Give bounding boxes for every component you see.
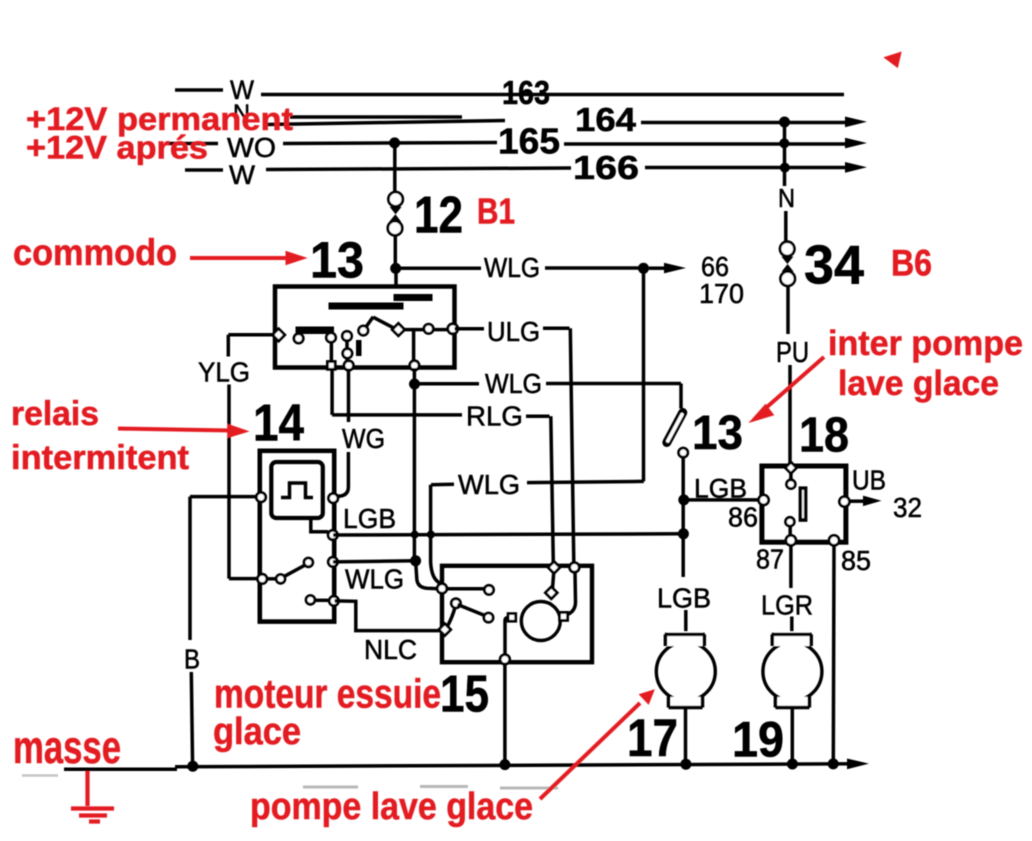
svg-text:85: 85 [841,545,871,576]
svg-text:B6: B6 [891,243,932,284]
svg-text:+12V aprés: +12V aprés [26,130,208,166]
svg-text:lave glace: lave glace [838,364,999,403]
svg-text:18: 18 [799,409,849,463]
svg-text:32: 32 [893,492,922,523]
svg-text:N: N [778,183,795,213]
svg-text:163: 163 [502,74,550,111]
svg-text:intermitent: intermitent [11,439,189,477]
svg-text:170: 170 [699,278,744,309]
svg-text:19: 19 [732,712,784,768]
svg-text:YLG: YLG [198,357,250,388]
svg-text:pompe lave glace: pompe lave glace [250,786,533,828]
svg-text:164: 164 [575,101,637,138]
svg-text:86: 86 [728,502,758,533]
svg-text:165: 165 [498,121,560,162]
svg-text:B: B [184,644,200,675]
svg-text:12: 12 [414,187,463,245]
svg-text:34: 34 [804,234,864,296]
svg-text:UB: UB [852,465,886,496]
svg-text:relais: relais [11,395,99,433]
svg-text:166: 166 [573,149,639,186]
svg-text:WLG: WLG [458,469,520,500]
svg-text:13: 13 [310,232,364,289]
svg-text:glace: glace [213,711,301,753]
svg-text:commodo: commodo [13,232,177,273]
svg-text:17: 17 [627,709,678,768]
svg-text:WLG: WLG [485,368,542,399]
svg-text:ULG: ULG [487,316,540,347]
svg-text:13: 13 [692,407,743,460]
svg-text:W: W [229,160,256,190]
svg-text:moteur essuie: moteur essuie [214,671,441,717]
svg-text:LGR: LGR [761,590,813,621]
svg-text:87: 87 [756,544,784,575]
svg-text:PU: PU [776,337,809,369]
svg-text:WLG: WLG [345,564,404,595]
svg-text:RLG: RLG [466,401,523,432]
svg-text:inter pompe: inter pompe [828,324,1023,363]
svg-text:masse: masse [13,721,121,773]
svg-text:WLG: WLG [484,252,540,283]
svg-text:14: 14 [253,395,304,453]
svg-text:B1: B1 [477,191,515,232]
svg-text:WG: WG [342,423,385,454]
svg-text:LGB: LGB [343,503,396,534]
svg-text:15: 15 [440,666,489,724]
svg-text:LGB: LGB [657,583,711,614]
svg-text:NLC: NLC [364,634,417,665]
